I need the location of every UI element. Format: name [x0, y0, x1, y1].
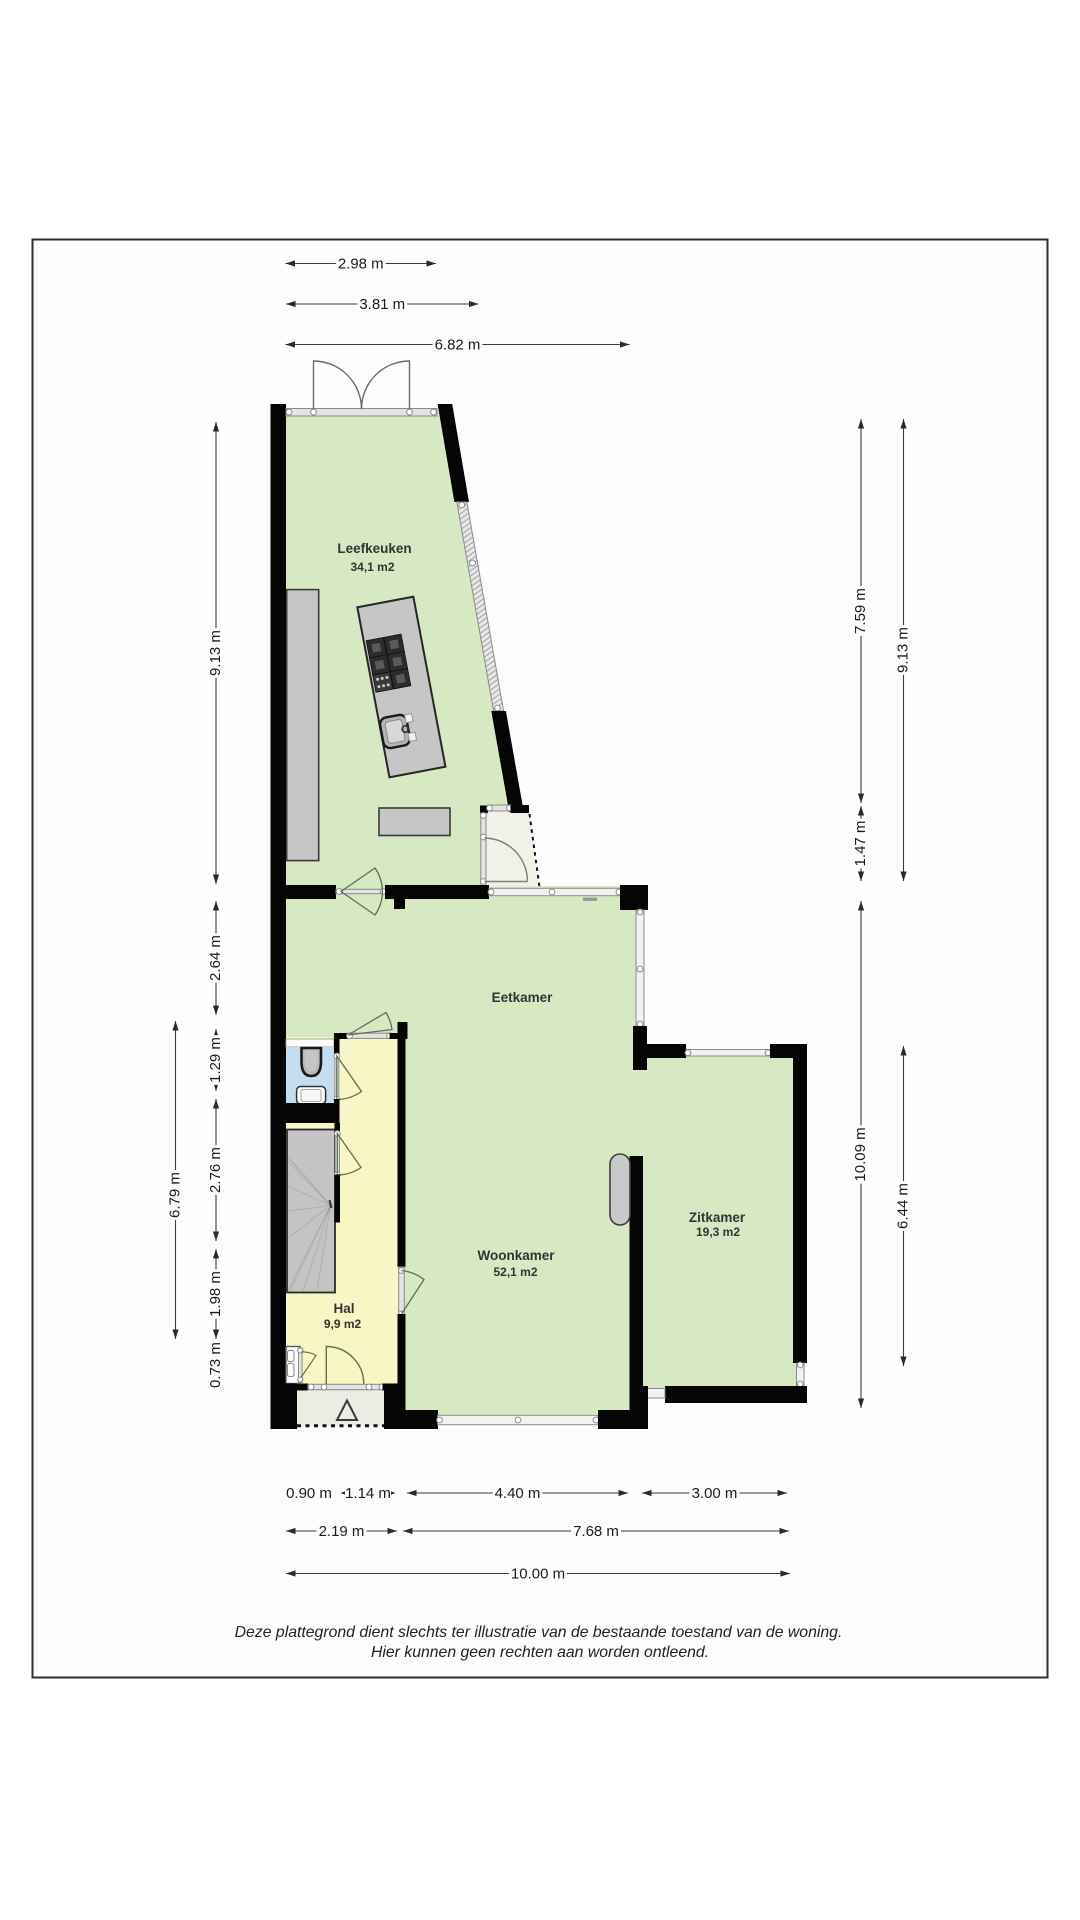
- svg-text:Hal: Hal: [333, 1301, 354, 1316]
- svg-text:0.90 m: 0.90 m: [286, 1485, 332, 1502]
- svg-text:4.40 m: 4.40 m: [495, 1485, 541, 1502]
- svg-text:Deze plattegrond dient slechts: Deze plattegrond dient slechts ter illus…: [235, 1624, 843, 1641]
- svg-text:6.44 m: 6.44 m: [894, 1183, 911, 1229]
- svg-text:Woonkamer: Woonkamer: [477, 1248, 555, 1263]
- svg-text:9.13 m: 9.13 m: [207, 630, 224, 676]
- svg-text:52,1 m2: 52,1 m2: [493, 1265, 537, 1279]
- svg-text:19,3 m2: 19,3 m2: [696, 1225, 740, 1239]
- svg-text:Hier kunnen geen rechten aan w: Hier kunnen geen rechten aan worden ontl…: [371, 1644, 709, 1661]
- svg-text:1.29 m: 1.29 m: [207, 1037, 224, 1083]
- svg-text:2.98 m: 2.98 m: [338, 256, 384, 273]
- svg-text:9,9 m2: 9,9 m2: [324, 1317, 362, 1331]
- svg-text:Eetkamer: Eetkamer: [492, 990, 554, 1005]
- svg-text:2.76 m: 2.76 m: [207, 1147, 224, 1193]
- svg-text:10.09 m: 10.09 m: [852, 1127, 869, 1181]
- svg-text:6.82 m: 6.82 m: [435, 337, 481, 354]
- svg-text:9.13 m: 9.13 m: [894, 627, 911, 673]
- svg-text:2.19 m: 2.19 m: [319, 1523, 365, 1540]
- svg-text:7.59 m: 7.59 m: [852, 588, 869, 634]
- svg-text:1.47 m: 1.47 m: [852, 821, 869, 867]
- svg-text:3.81 m: 3.81 m: [359, 296, 405, 313]
- svg-text:1.14 m: 1.14 m: [345, 1485, 391, 1502]
- svg-text:2.64 m: 2.64 m: [207, 935, 224, 981]
- svg-text:0.73 m: 0.73 m: [207, 1342, 224, 1388]
- svg-text:10.00 m: 10.00 m: [511, 1566, 565, 1583]
- svg-text:6.79 m: 6.79 m: [166, 1172, 183, 1218]
- svg-text:Zitkamer: Zitkamer: [689, 1210, 746, 1225]
- svg-text:3.00 m: 3.00 m: [692, 1485, 738, 1502]
- svg-text:Leefkeuken: Leefkeuken: [337, 541, 411, 556]
- svg-text:7.68 m: 7.68 m: [573, 1523, 619, 1540]
- svg-text:1.98 m: 1.98 m: [207, 1271, 224, 1317]
- svg-text:34,1 m2: 34,1 m2: [350, 560, 394, 574]
